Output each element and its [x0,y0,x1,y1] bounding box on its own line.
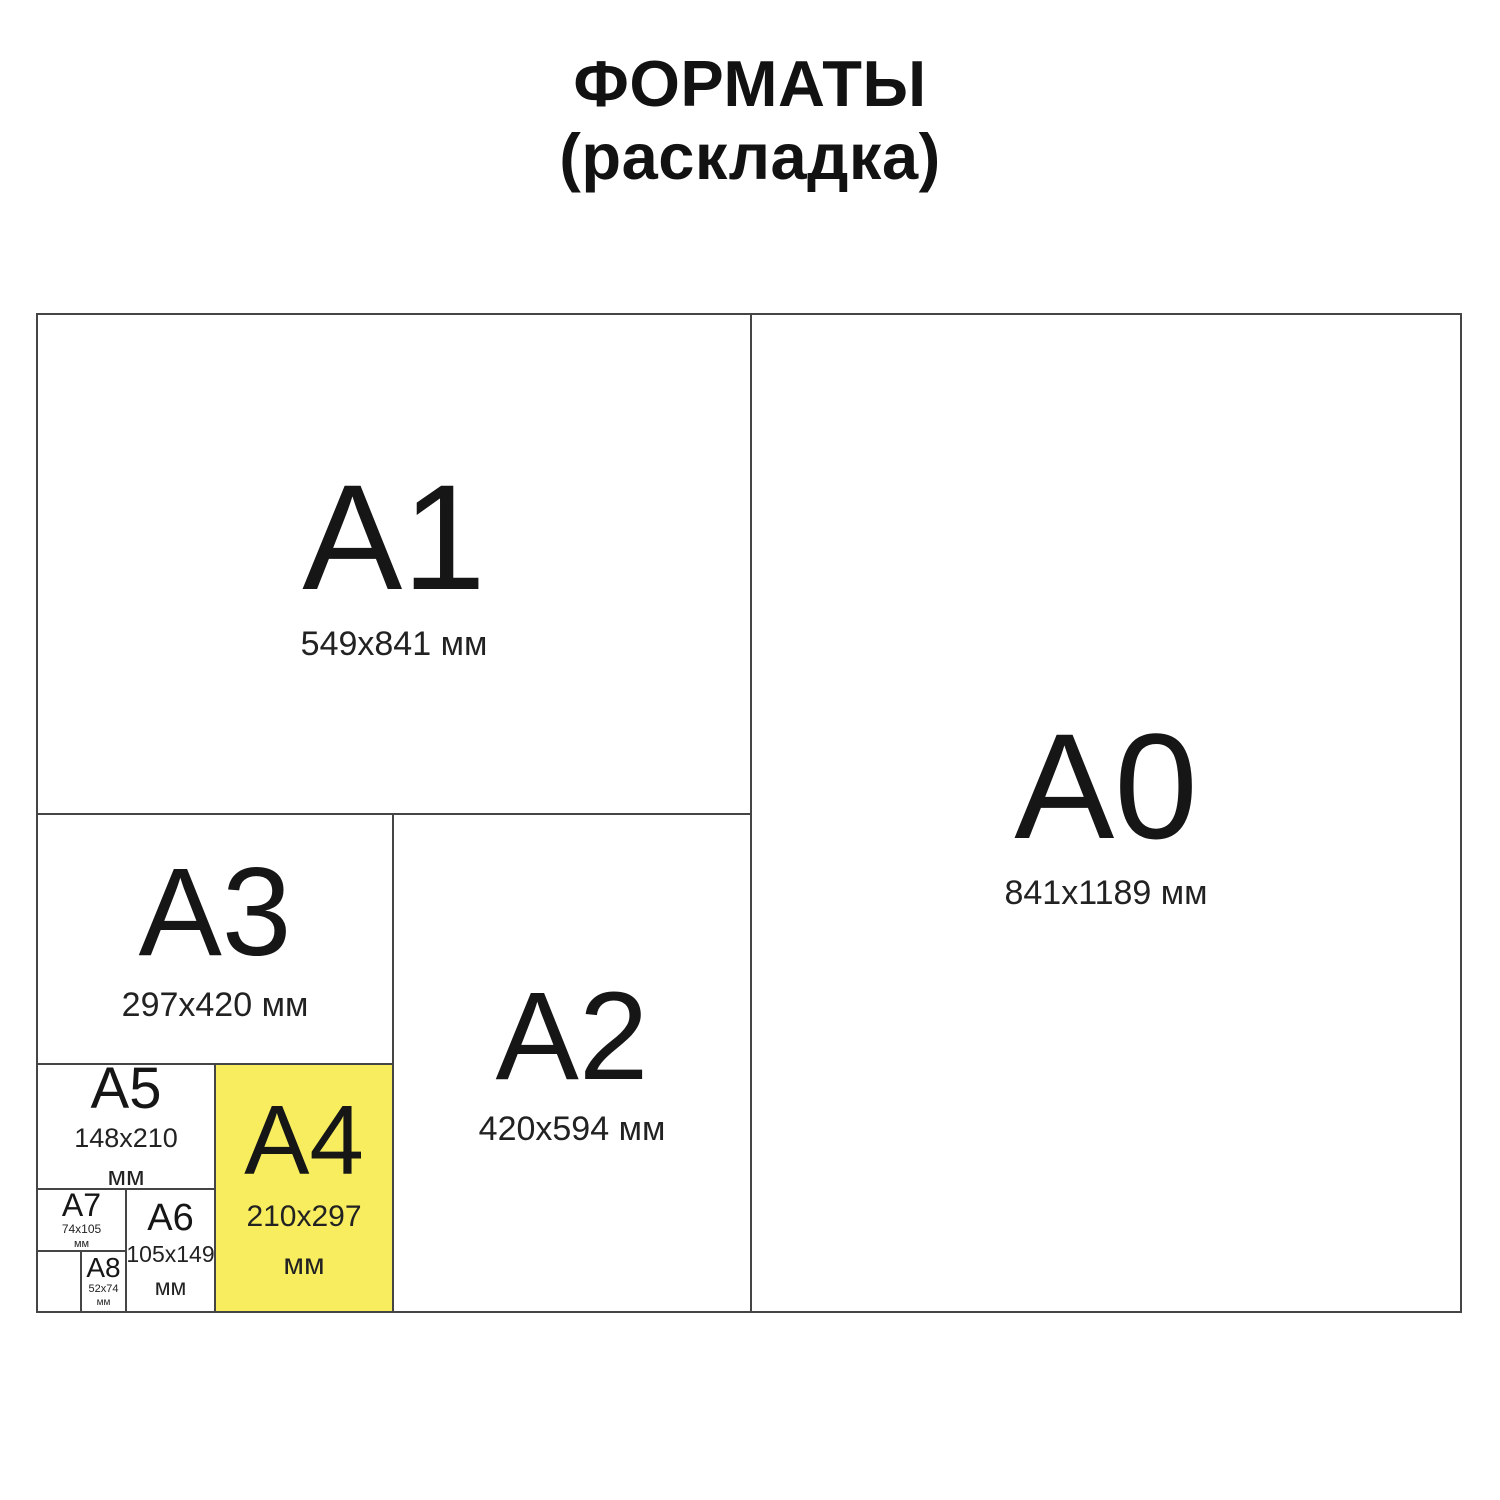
format-a8-unit: мм [97,1297,111,1309]
format-a0-box: A0 841x1189 мм [750,313,1462,1313]
format-a5-label: A5 [91,1060,162,1118]
format-a6-box: A6 105x149 мм [125,1188,216,1313]
format-a4-size: 210x297 [246,1197,361,1238]
format-a3-label: A3 [139,850,292,975]
format-a4-box: A4 210x297 мм [214,1063,394,1313]
format-a8-size: 52x74 [89,1283,119,1296]
format-a5-box: A5 148x210 мм [36,1063,216,1190]
paper-formats-diagram: A1 549x841 мм A0 841x1189 мм A3 297x420 … [36,313,1462,1313]
format-a1-box: A1 549x841 мм [36,313,752,815]
format-a7-box: A7 74x105 мм [36,1188,127,1252]
format-a2-box: A2 420x594 мм [392,813,752,1313]
format-a1-size: 549x841 мм [301,622,488,666]
format-a3-box: A3 297x420 мм [36,813,394,1065]
format-a0-size: 841x1189 мм [1004,871,1207,915]
format-a2-size: 420x594 мм [479,1107,666,1151]
page-title-line1: ФОРМАТЫ [0,48,1500,121]
page-title-line2: (раскладка) [0,121,1500,194]
format-a6-size: 105x149 [126,1240,214,1270]
page-title: ФОРМАТЫ (раскладка) [0,48,1500,194]
format-a6-unit: мм [155,1273,187,1303]
page: ФОРМАТЫ (раскладка) A1 549x841 мм A0 841… [0,0,1500,1500]
format-a8-box: A8 52x74 мм [80,1250,127,1313]
format-a5-size: 148x210 [74,1122,178,1156]
format-a7-label: A7 [62,1189,101,1221]
format-a4-unit: мм [283,1245,324,1286]
format-a1-label: A1 [302,462,485,612]
format-a2-label: A2 [496,974,649,1099]
format-a4-label: A4 [244,1091,364,1189]
format-a7-size: 74x105 [62,1222,101,1237]
format-a6-label: A6 [147,1199,193,1237]
format-a3-size: 297x420 мм [122,983,309,1027]
format-a8-label: A8 [86,1254,120,1282]
format-a0-label: A0 [1014,711,1197,861]
